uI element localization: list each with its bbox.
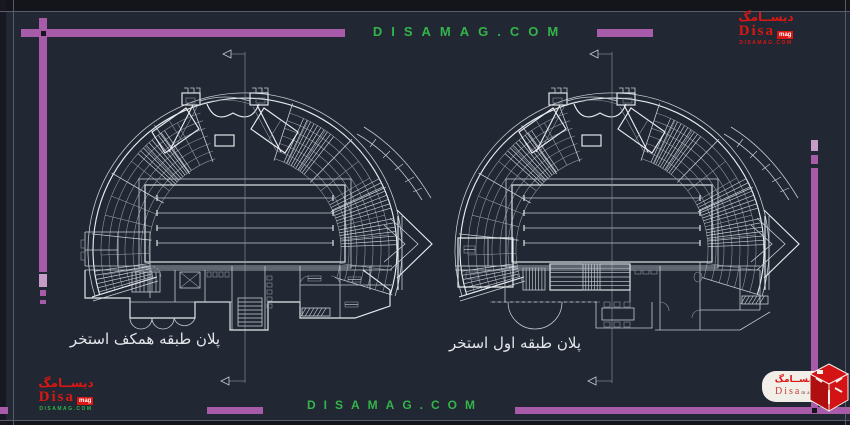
- brand-suffix-badge: mag: [77, 397, 93, 405]
- section-arrow-icon: [588, 377, 596, 385]
- brand-logo-top-right: دیســامگ Disa mag DISAMAG.COM: [738, 11, 794, 46]
- brand-logo-bottom-left: دیســامگ Disa mag DISAMAG.COM: [36, 377, 96, 412]
- section-arrow-icon: [590, 50, 598, 58]
- first-floor-label: پلان طبقه اول استخر: [435, 334, 595, 352]
- brand-site-text: DISAMAG.COM: [36, 407, 96, 412]
- brand-arabic-text: دیســامگ: [36, 377, 96, 389]
- section-arrow-icon: [223, 50, 231, 58]
- ground-floor-label: پلان طبقه همکف استخر: [65, 330, 225, 348]
- floor-plan-canvas: [0, 0, 850, 425]
- brand-suffix-badge: mag: [777, 31, 793, 39]
- brand-site-text: DISAMAG.COM: [738, 41, 794, 46]
- brand-arabic-text: دیســامگ: [738, 11, 794, 23]
- brand-name-text: Disa: [739, 24, 775, 39]
- brand-name-text: Disa: [39, 390, 75, 405]
- cube-logo-icon: [808, 362, 850, 414]
- cad-sheet: DISAMAG.COM DISAMAG.COM پلان طبقه همکف ا…: [0, 0, 850, 425]
- section-arrow-icon: [221, 377, 229, 385]
